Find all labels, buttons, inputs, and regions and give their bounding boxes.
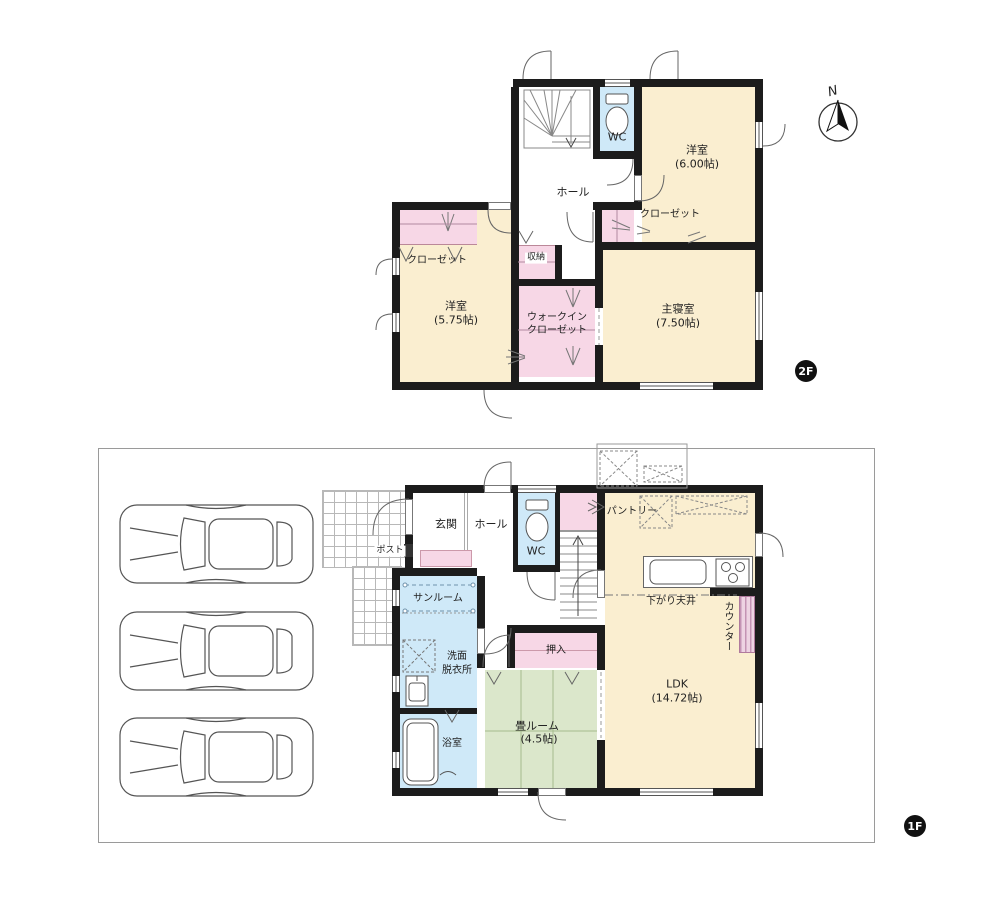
label-2f-shuno: 収納: [525, 253, 547, 264]
label-2f-closet6: クローゼット: [640, 209, 700, 221]
label-1f-post: ポスト: [374, 546, 405, 557]
label-1f-senmen-line2: 脱衣所: [442, 665, 472, 677]
label-1f-counter: カウンター: [721, 601, 733, 651]
floor-badge-2f: 2F: [795, 360, 817, 382]
label-2f-shushinshitsu: 主寝室: [662, 302, 695, 315]
label-1f-oshiire: 押入: [546, 645, 566, 657]
label-2f-yoshitsu6-area: (6.00帖): [675, 157, 719, 170]
label-1f-genkan: 玄関: [435, 517, 457, 530]
car-icon: [120, 505, 313, 796]
label-1f-tatami-area: (4.5帖): [520, 732, 557, 745]
bathtub-icon: [403, 719, 456, 785]
label-2f-wc: WC: [608, 130, 627, 143]
kitchen-sink-icon: [650, 560, 706, 584]
label-2f-yoshitsu575: 洋室: [445, 299, 467, 312]
plan-symbols: [0, 0, 1000, 922]
stairs-1f-icon: [560, 536, 597, 618]
label-1f-sagari-tenjo: 下がり天井: [646, 596, 696, 608]
label-2f-wic-line1: ウォークイン: [527, 312, 587, 324]
stove-icon: [716, 559, 749, 586]
label-1f-pantry: パントリー: [607, 506, 658, 518]
label-1f-ldk-area: (14.72帖): [651, 691, 702, 704]
label-2f-closet575: クローゼット: [407, 255, 467, 267]
label-2f-shushinshitsu-area: (7.50帖): [656, 316, 700, 329]
floor-plan-canvas: ホール WC 洋室 (6.00帖) クローゼット 収納 クローゼット 洋室 (5…: [0, 0, 1000, 922]
toilet-icon: [526, 500, 548, 541]
label-2f-yoshitsu6: 洋室: [686, 143, 708, 156]
stairs-2f-icon: [524, 90, 590, 148]
label-1f-hall: ホール: [475, 517, 508, 530]
compass-icon: [819, 100, 857, 141]
label-2f-wic-line2: クローゼット: [527, 325, 587, 337]
label-1f-tatami: 畳ルーム: [515, 719, 559, 732]
label-1f-senmen-line1: 洗面: [447, 651, 467, 663]
label-1f-sunroom: サンルーム: [413, 593, 463, 605]
toilet-icon: [606, 94, 628, 135]
label-1f-ldk: LDK: [666, 677, 688, 690]
vanity-icon: [406, 676, 428, 706]
label-2f-hall: ホール: [557, 185, 590, 198]
washer-icon: [403, 640, 435, 672]
label-1f-wc: WC: [527, 544, 546, 557]
floor-badge-1f: 1F: [904, 815, 926, 837]
label-2f-yoshitsu575-area: (5.75帖): [434, 313, 478, 326]
label-1f-bath: 浴室: [442, 738, 462, 750]
